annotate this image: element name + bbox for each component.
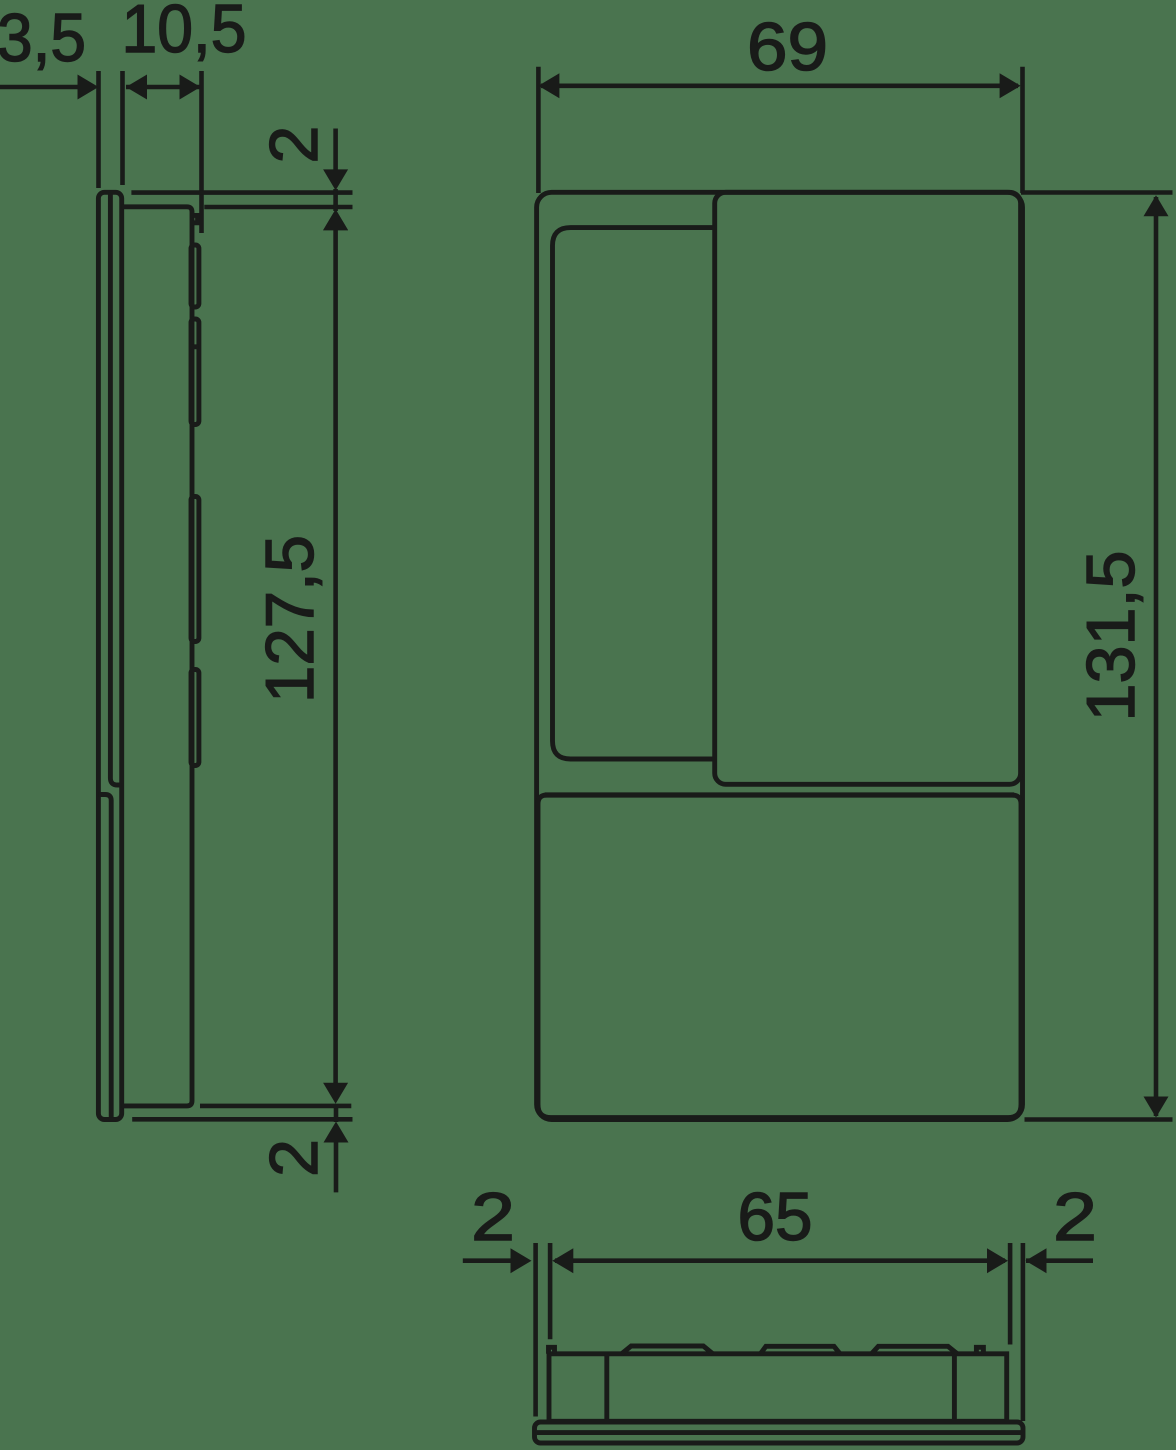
svg-text:69: 69 [747, 9, 828, 85]
svg-text:3,5: 3,5 [0, 0, 86, 76]
svg-text:2: 2 [256, 1139, 332, 1177]
svg-text:65: 65 [738, 1179, 813, 1255]
svg-text:2: 2 [1053, 1179, 1097, 1255]
svg-text:2: 2 [471, 1179, 515, 1255]
svg-text:2: 2 [256, 126, 332, 164]
svg-text:127,5: 127,5 [252, 535, 328, 703]
svg-text:10,5: 10,5 [122, 0, 247, 67]
svg-text:131,5: 131,5 [1073, 551, 1149, 722]
